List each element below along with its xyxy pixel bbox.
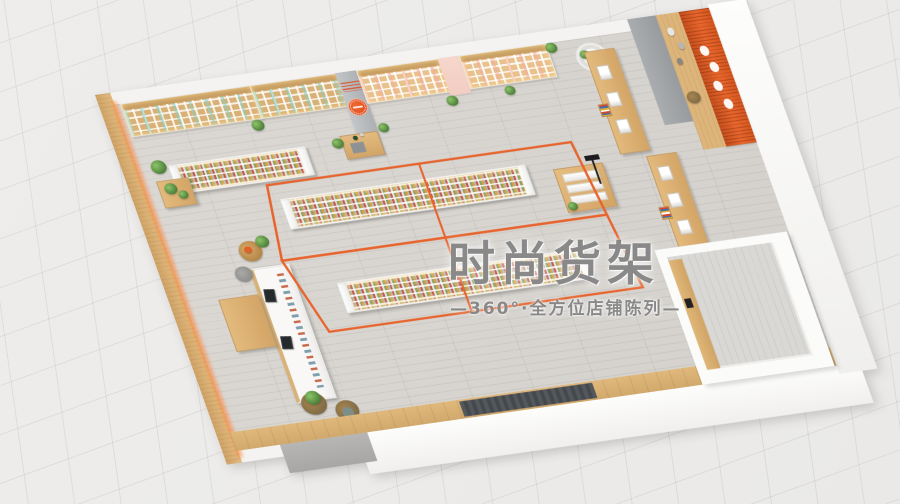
watermark-subtitle: —360°·全方位店铺陈列— — [450, 301, 681, 318]
store-render-image: 时尚货架 —360°·全方位店铺陈列— — [0, 0, 900, 504]
watermark-title: 时尚货架 — [448, 241, 660, 288]
